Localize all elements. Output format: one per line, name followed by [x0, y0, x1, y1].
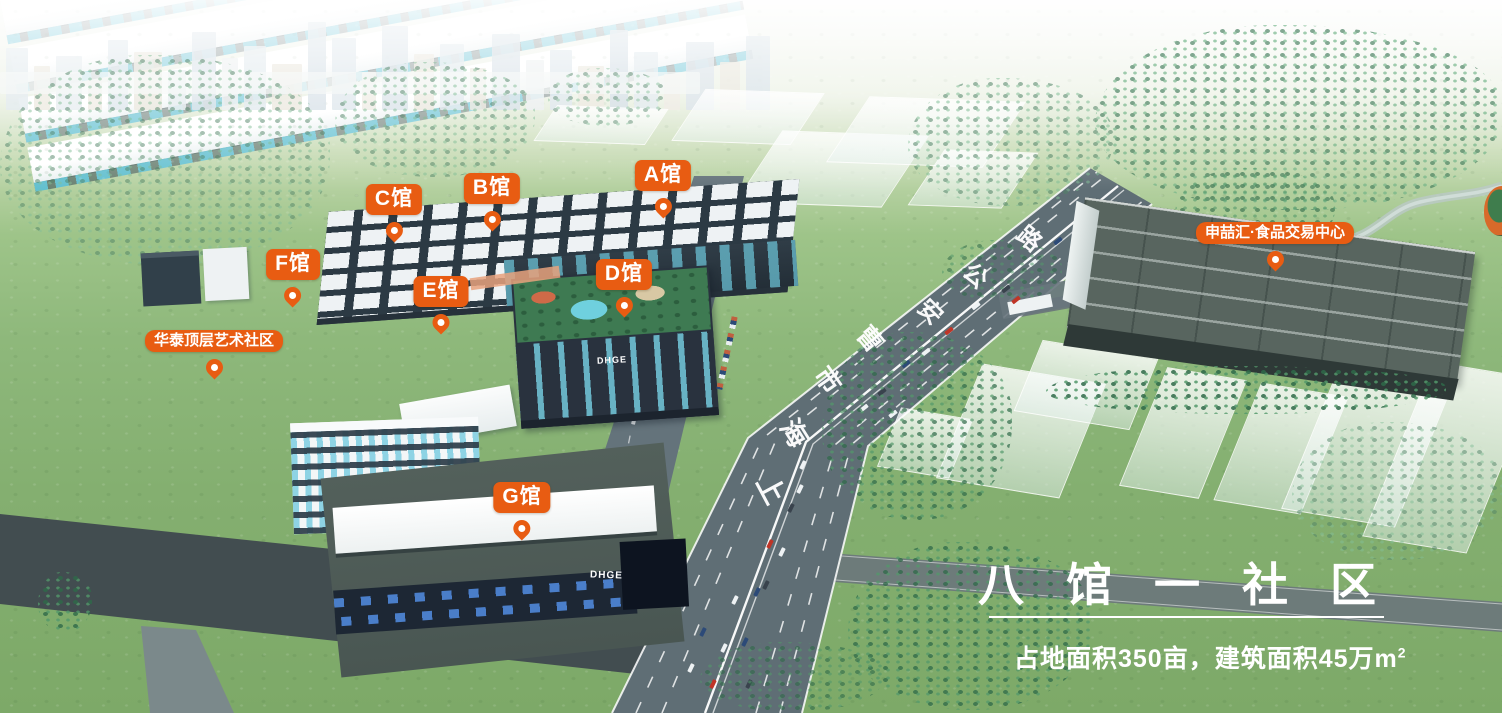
- tree-cluster: [942, 240, 1062, 302]
- caption-area-text: 占地面积350亩，建筑面积45万m: [1014, 645, 1398, 673]
- caption-divider-line: [989, 616, 1384, 618]
- hall-d-wall: [516, 331, 719, 429]
- map-pin-icon: [382, 218, 406, 242]
- hall-g-corner: [620, 539, 689, 610]
- tree-cluster: [548, 68, 666, 126]
- dhge-logo-hall-g: DHGE: [590, 569, 623, 581]
- marker-food-trade-center[interactable]: 申喆汇·食品交易中心: [1196, 222, 1354, 268]
- marker-hall-e[interactable]: E馆: [413, 276, 468, 331]
- marker-hall-g-pill: G馆: [493, 482, 550, 513]
- marker-hall-g[interactable]: G馆: [493, 482, 550, 537]
- marker-hall-d[interactable]: D馆: [596, 259, 652, 314]
- hall-g-building: [320, 443, 684, 678]
- caption-subtitle: 占地面积350亩，建筑面积45万m2: [1014, 639, 1407, 675]
- map-pin-icon: [480, 207, 504, 231]
- map-pin-icon: [1263, 247, 1287, 271]
- marker-hall-b-pill: B馆: [464, 173, 520, 204]
- marker-huatai-art-community[interactable]: 华泰顶层艺术社区: [145, 330, 283, 376]
- marker-hall-d-pill: D馆: [596, 259, 652, 290]
- marker-hall-f[interactable]: F馆: [266, 249, 320, 304]
- tree-cluster: [335, 62, 535, 177]
- map-pin-icon: [429, 310, 453, 334]
- map-pin-icon: [612, 293, 636, 317]
- utility-tower-dark: [141, 251, 202, 307]
- tree-cluster: [700, 642, 885, 712]
- marker-hall-f-pill: F馆: [266, 249, 320, 280]
- tree-cluster: [0, 55, 330, 265]
- tree-cluster: [822, 332, 1012, 520]
- tree-cluster: [38, 572, 92, 632]
- marker-hall-c[interactable]: C馆: [366, 184, 422, 239]
- marker-hall-a[interactable]: A馆: [635, 160, 691, 215]
- marker-hall-a-pill: A馆: [635, 160, 691, 191]
- tree-cluster: [1046, 366, 1446, 414]
- tree-cluster: [1292, 422, 1502, 560]
- park-aerial-scene: DHGE DHGE 上 海 市 曹 安 公 路 C馆 B馆 A馆 F馆 E馆 D…: [0, 0, 1502, 713]
- tree-cluster: [908, 78, 1113, 206]
- map-pin-icon: [202, 355, 226, 379]
- map-pin-icon: [281, 283, 305, 307]
- dhge-logo-hall-d: DHGE: [597, 354, 627, 366]
- caption-title: 八馆一社区: [978, 549, 1418, 615]
- caption-area-superscript: 2: [1398, 645, 1407, 661]
- footpath: [141, 626, 234, 713]
- utility-tower-white: [203, 247, 250, 301]
- map-pin-icon: [651, 194, 675, 218]
- marker-huatai-pill: 华泰顶层艺术社区: [145, 330, 283, 352]
- marker-food-trade-pill: 申喆汇·食品交易中心: [1196, 222, 1354, 244]
- map-pin-icon: [510, 516, 534, 540]
- marker-hall-e-pill: E馆: [413, 276, 468, 307]
- marker-hall-b[interactable]: B馆: [464, 173, 520, 228]
- marker-hall-c-pill: C馆: [366, 184, 422, 215]
